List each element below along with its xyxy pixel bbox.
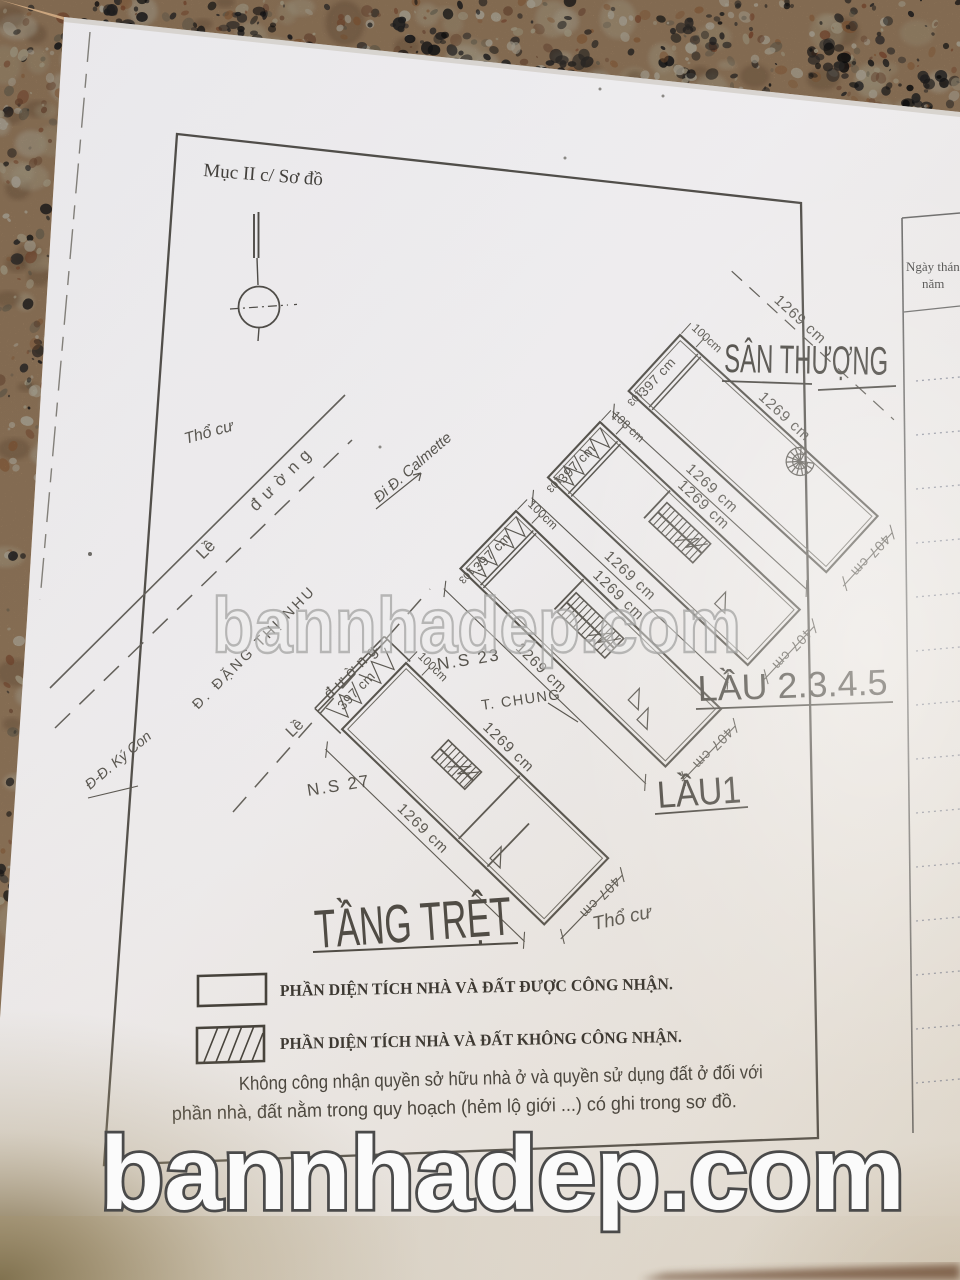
svg-text:bannhadep.com: bannhadep.com bbox=[212, 581, 741, 669]
svg-text:bannhadep.com: bannhadep.com bbox=[100, 1116, 905, 1232]
